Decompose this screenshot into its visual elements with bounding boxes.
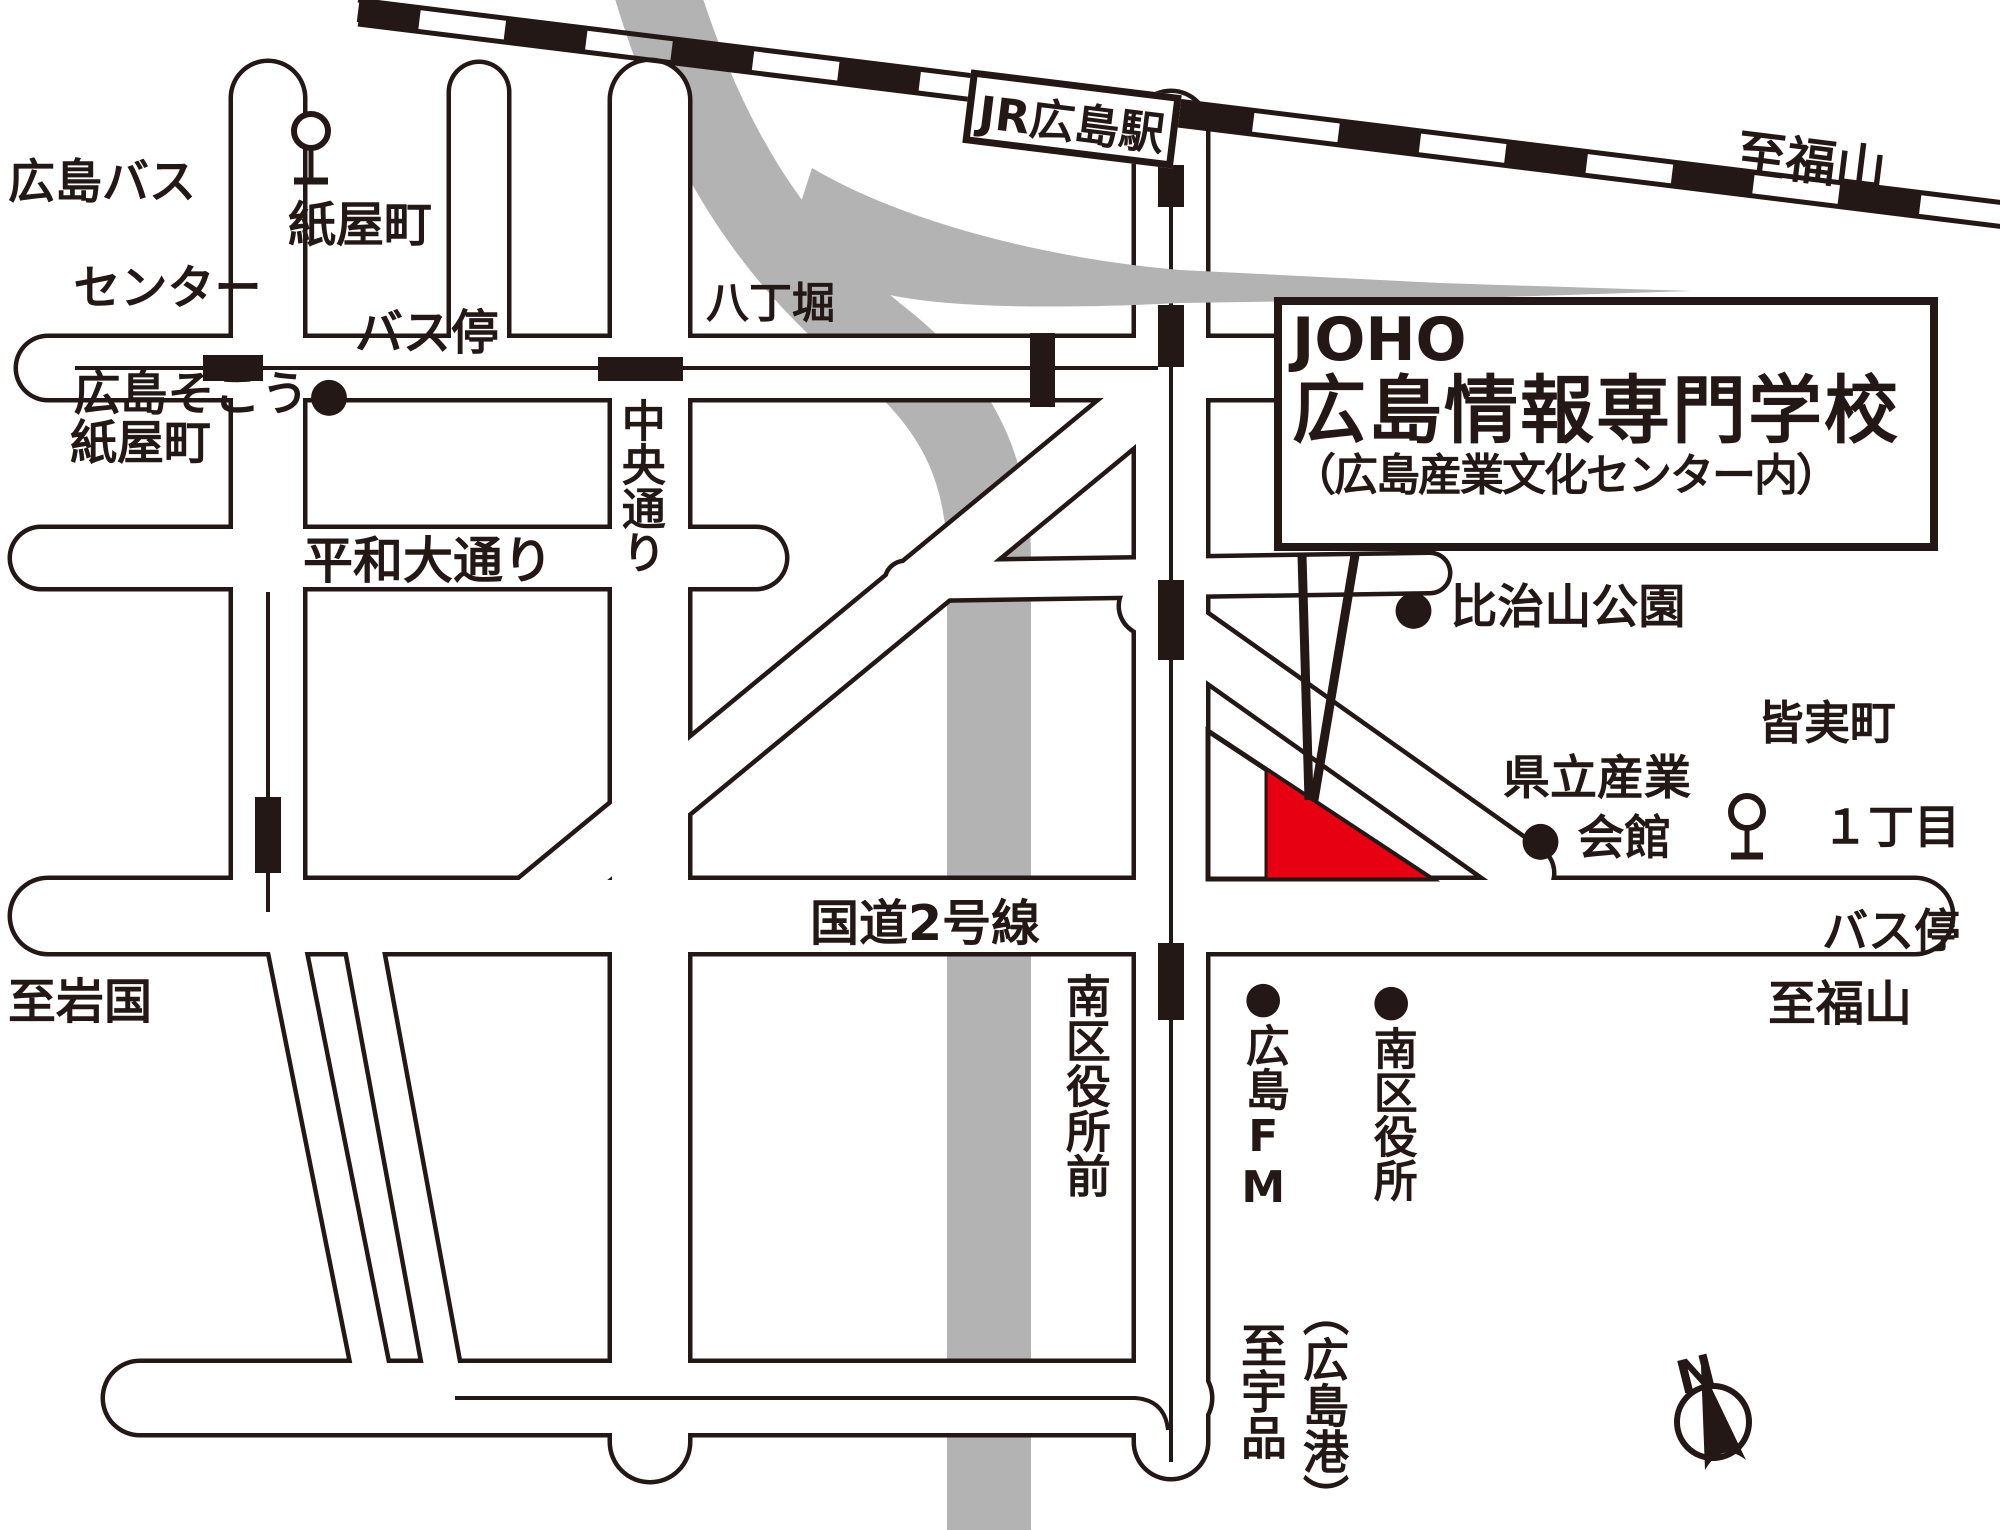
label-hiroshima-port: （広島港） (1296, 1290, 1348, 1520)
label-hiroshima-fm: ●広島FM (1238, 972, 1288, 1213)
label-kaikan: ● 会館 (1520, 812, 1671, 865)
label-minami-1chome-bus-stop: 皆実町 １丁目 バス停 (1758, 698, 1960, 958)
label-to-ujina: 至宇品 (1234, 1322, 1286, 1460)
label-hijiyama-park: ● 比治山公園 (1393, 581, 1685, 634)
school-name-ja: 広島情報専門学校 (1292, 372, 1926, 452)
compass-north-label: N (1671, 1344, 1721, 1406)
label-minamiku-yakusho-mae: 南区役所前 (1058, 973, 1109, 1198)
joho-school-callout-box: JOHO 広島情報専門学校 （広島産業文化センター内） (1274, 297, 1938, 551)
label-to-iwakuni: 至岩国 (8, 975, 152, 1029)
label-to-fukuyama-road: 至福山 (1768, 977, 1912, 1031)
label-chuo-dori: 中央通り (614, 398, 664, 574)
label-kamiyacho: 紙屋町 (70, 417, 211, 470)
label-hatchobori: 八丁堀 (706, 280, 835, 329)
access-map: N 広島バス センター 広島そごう● 紙屋町 バス停 八丁堀 紙屋町 中央通り … (0, 0, 2000, 1530)
label-kenritsu-sangyo: 県立産業 (1503, 752, 1691, 805)
school-location-note: （広島産業文化センター内） (1292, 452, 1926, 500)
label-kokudo-2: 国道2号線 (810, 896, 1040, 951)
gray-boulevard-east-branch (800, 168, 1692, 307)
label-minamiku-yakusho: ●南区役所 (1366, 975, 1416, 1202)
label-heiwa-odori: 平和大通り (303, 533, 553, 590)
school-name-en: JOHO (1292, 309, 1926, 372)
compass: N (1671, 1344, 1749, 1470)
label-kamiyacho-bus-stop: 紙屋町 バス停 (288, 198, 499, 361)
